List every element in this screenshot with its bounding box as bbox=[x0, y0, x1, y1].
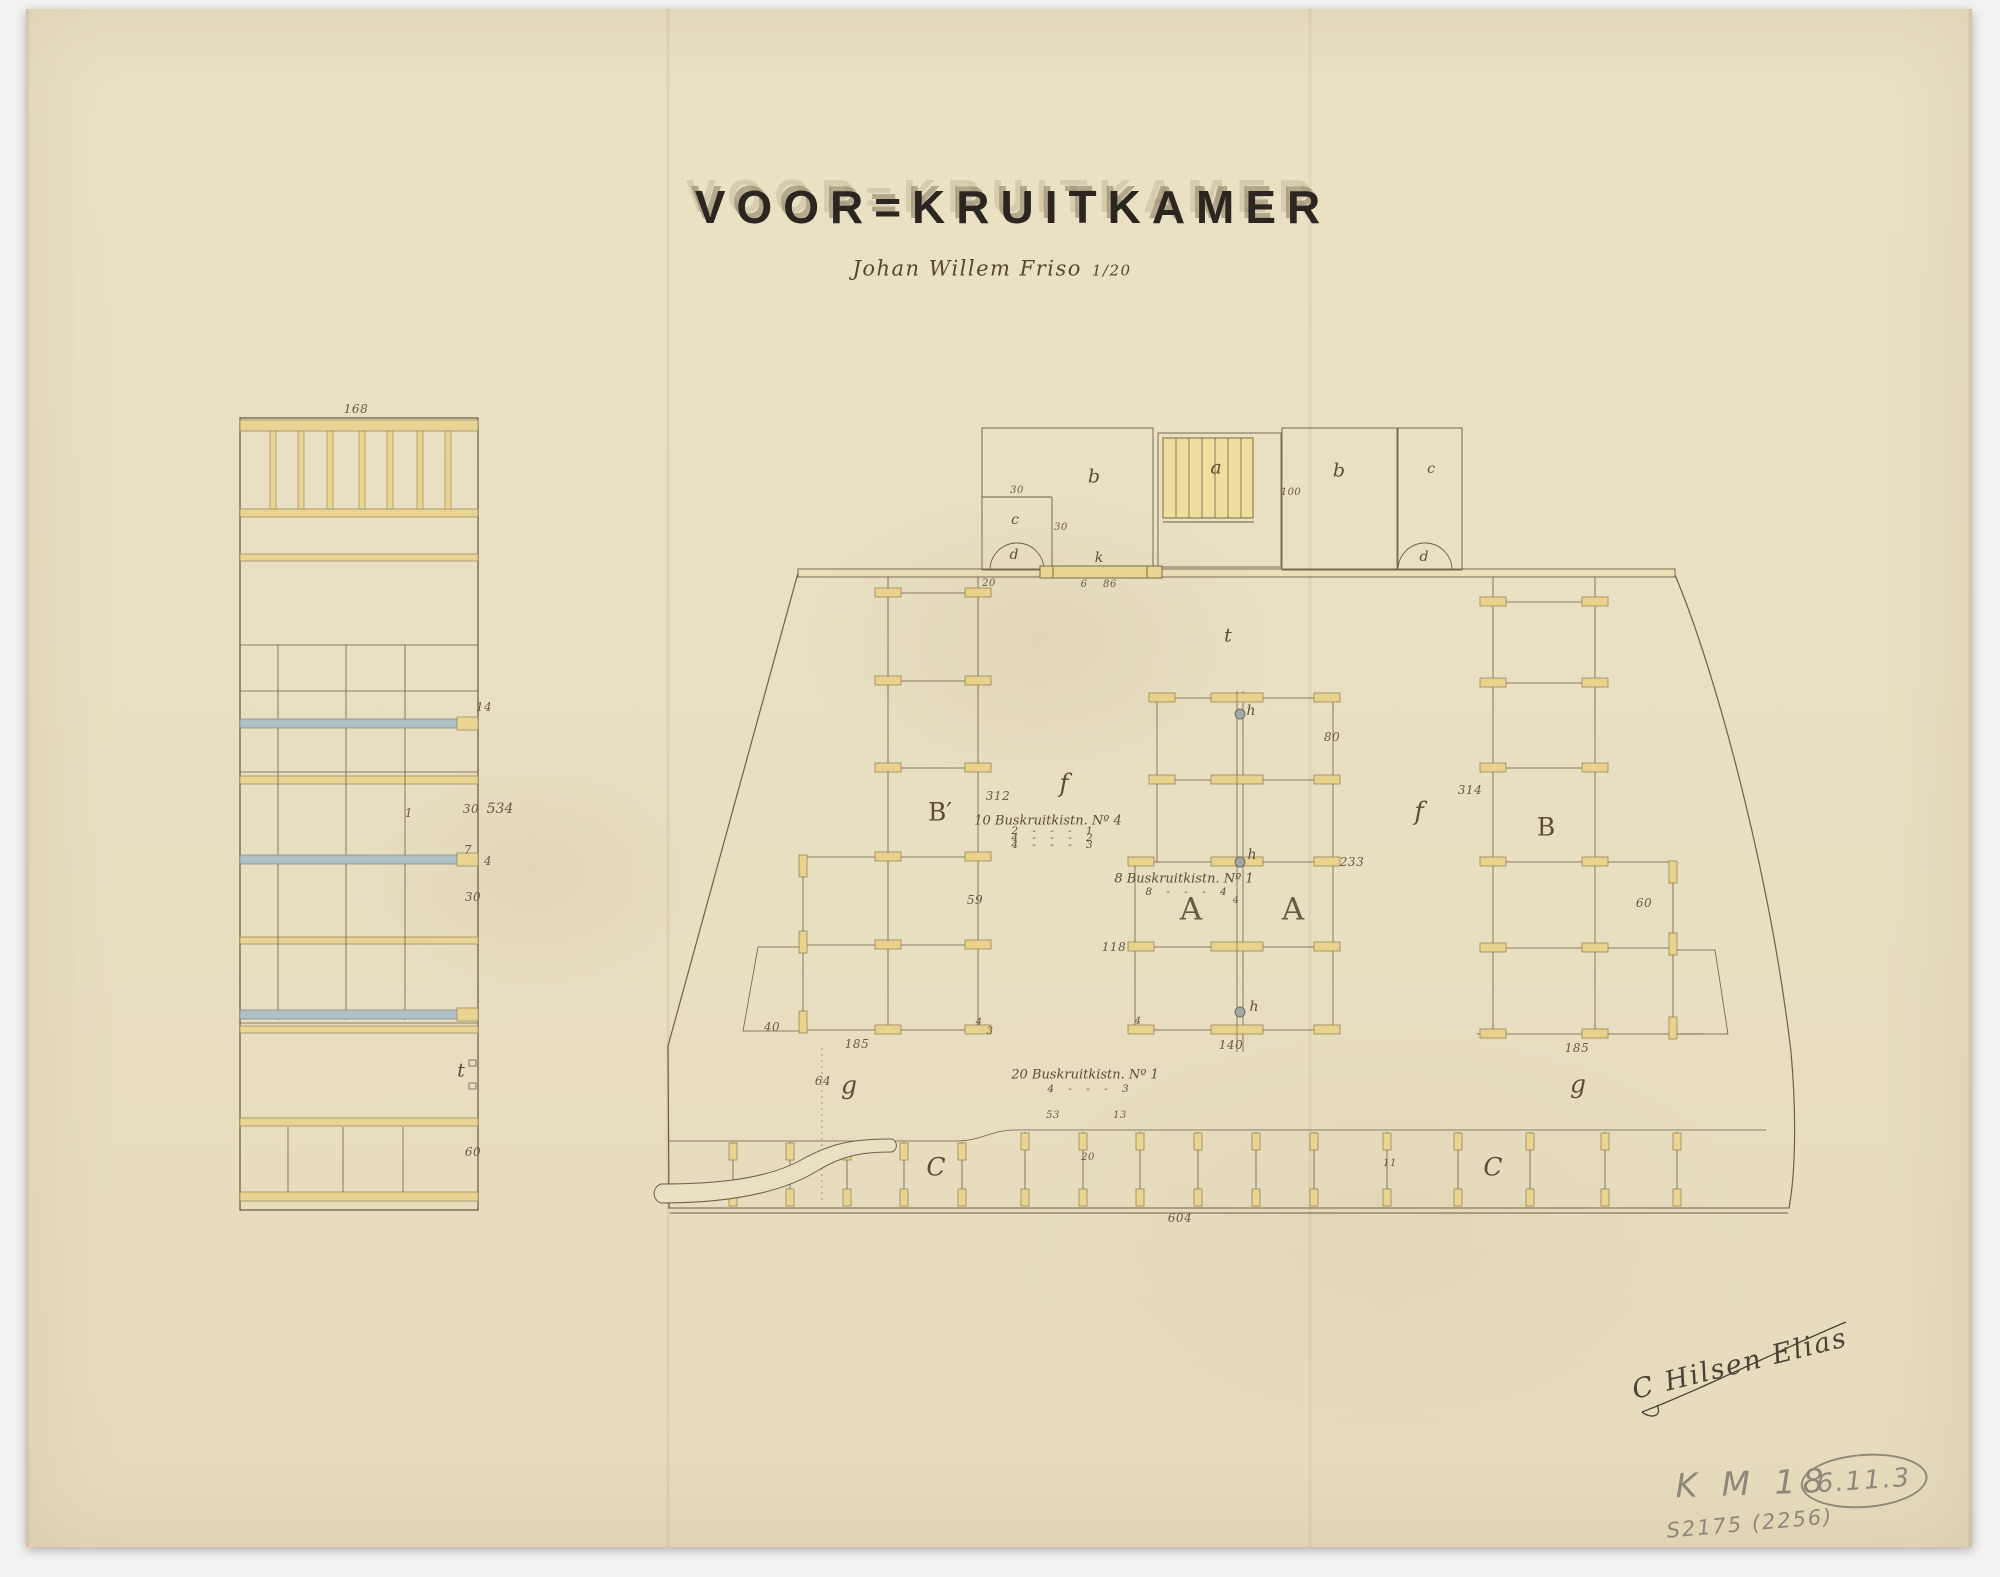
right-rack bbox=[1477, 577, 1728, 1039]
elevation-dim-14: 14 bbox=[476, 701, 492, 713]
note-kist4-line4: 4 - - - 3 bbox=[1011, 840, 1092, 851]
elevation-dim-7: 7 bbox=[464, 844, 472, 856]
room-label-b-right: b bbox=[1333, 462, 1345, 481]
elevation-dim-30b: 30 bbox=[465, 891, 481, 903]
dim-86: 86 bbox=[1103, 580, 1117, 590]
left-rack bbox=[743, 577, 991, 1034]
dim-13: 13 bbox=[1113, 1111, 1127, 1121]
hold-label-c-right: C bbox=[1483, 1155, 1502, 1180]
dim-60-right: 60 bbox=[1636, 897, 1652, 909]
dim-20-left: 20 bbox=[982, 579, 996, 589]
hold-label-c-left: C bbox=[926, 1155, 945, 1180]
dim-80: 80 bbox=[1324, 731, 1340, 743]
rack-label-b-prime: B′ bbox=[928, 800, 952, 825]
dim-185-right: 185 bbox=[1565, 1042, 1589, 1054]
dim-6: 6 bbox=[1081, 580, 1088, 590]
room-label-c-inner: c bbox=[1011, 513, 1019, 527]
dim-312: 312 bbox=[986, 790, 1010, 802]
deck-label-t: t bbox=[1224, 627, 1232, 646]
drawing-subtitle: Johan Willem Friso1/20 bbox=[852, 259, 1131, 280]
hatch-label-k: k bbox=[1095, 551, 1103, 565]
area-label-f-left: f bbox=[1059, 771, 1068, 796]
pillar-label-h3: h bbox=[1249, 1000, 1258, 1014]
dim-40: 40 bbox=[764, 1021, 780, 1033]
dim-4-left: 4 bbox=[1135, 1017, 1142, 1027]
drawing-scale: 1/20 bbox=[1092, 262, 1132, 280]
dim-4-corner: 4 bbox=[976, 1018, 983, 1028]
note-kist20-line1: 20 Buskruitkistn. Nº 1 bbox=[1011, 1069, 1159, 1082]
ship-name: Johan Willem Friso bbox=[852, 257, 1081, 281]
pillar-label-h1: h bbox=[1246, 704, 1255, 718]
note-kist1-line2: 8 - - - 4 bbox=[1145, 887, 1226, 898]
dim-118: 118 bbox=[1102, 941, 1126, 953]
dim-3-corner: 3 bbox=[987, 1027, 994, 1037]
note-kist20-line2: 4 - - - 3 bbox=[1047, 1084, 1128, 1095]
dim-30-b: 30 bbox=[1054, 523, 1068, 533]
dim-53: 53 bbox=[1046, 1111, 1060, 1121]
elevation-dim-top: 168 bbox=[344, 403, 368, 415]
dim-185-left: 185 bbox=[845, 1038, 869, 1050]
elevation-dim-1: 1 bbox=[405, 807, 413, 819]
dim-20-band: 20 bbox=[1081, 1153, 1095, 1163]
elevation-top-posts bbox=[270, 431, 451, 509]
dim-59: 59 bbox=[967, 894, 983, 906]
elevation-dim-534: 534 bbox=[487, 802, 514, 816]
room-label-d-right: d bbox=[1420, 550, 1429, 564]
elevation-dim-4: 4 bbox=[484, 855, 492, 867]
rack-label-b: B bbox=[1537, 815, 1555, 840]
stanchion-pillars bbox=[1235, 709, 1245, 1017]
dim-140: 140 bbox=[1219, 1039, 1243, 1051]
rack-label-a2: A bbox=[1282, 895, 1304, 926]
dim-11: 11 bbox=[1383, 1159, 1397, 1169]
drawing-title: VOOR=KRUITKAMER bbox=[695, 184, 1332, 230]
rack-label-a1: A bbox=[1180, 895, 1202, 926]
dim-233: 233 bbox=[1340, 856, 1364, 868]
dim-30-a: 30 bbox=[1010, 486, 1024, 496]
area-label-g-left: g bbox=[841, 1073, 857, 1098]
scanned-ship-plan: { "labels": { "title": "VOOR=KRUITKAMER"… bbox=[0, 0, 2000, 1577]
elevation-blue-shelves bbox=[240, 719, 458, 1019]
area-label-f-right: f bbox=[1414, 799, 1423, 824]
dim-314: 314 bbox=[1458, 784, 1482, 796]
dim-64: 64 bbox=[815, 1075, 831, 1087]
left-elevation-drawing bbox=[240, 418, 478, 1210]
main-plan-drawing bbox=[654, 428, 1795, 1213]
bottom-frame-band bbox=[654, 1048, 1766, 1206]
room-label-d-left: d bbox=[1010, 548, 1019, 562]
curved-chute bbox=[654, 1139, 896, 1203]
elevation-dim-60: 60 bbox=[465, 1146, 481, 1158]
pillar-label-h2: h bbox=[1247, 848, 1256, 862]
upper-cabins bbox=[982, 428, 1462, 578]
room-label-c-right: c bbox=[1427, 462, 1435, 476]
note-kist1-line1: 8 Buskruitkistn. Nº 1 bbox=[1114, 873, 1253, 886]
area-label-g-right: g bbox=[1570, 1072, 1586, 1097]
dim-100: 100 bbox=[1281, 488, 1302, 498]
elevation-letter-t: t bbox=[457, 1062, 465, 1081]
elevation-dim-30a: 30 bbox=[463, 803, 479, 815]
dim-4-center: 4 bbox=[1233, 896, 1240, 906]
room-label-b-left: b bbox=[1088, 468, 1100, 487]
room-label-a: a bbox=[1210, 459, 1221, 478]
dim-604: 604 bbox=[1168, 1212, 1192, 1224]
